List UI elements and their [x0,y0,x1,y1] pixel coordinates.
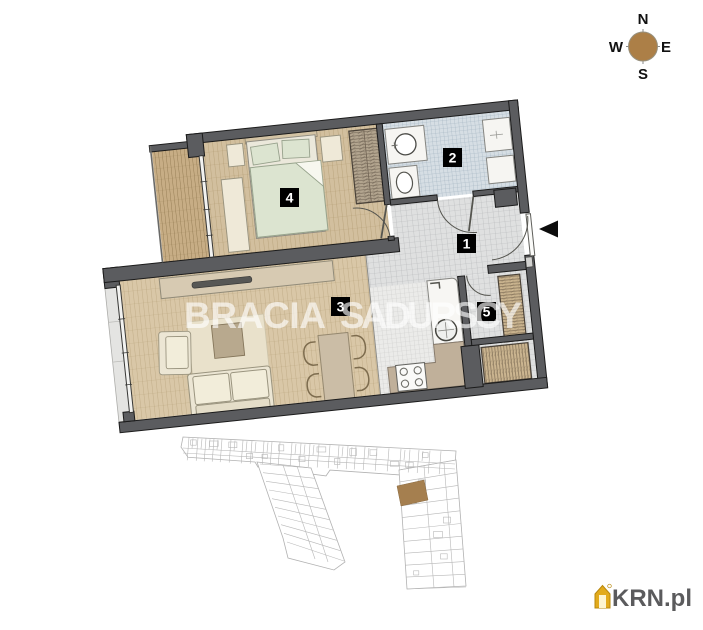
svg-text:S: S [638,66,648,83]
svg-text:1: 1 [463,236,471,252]
svg-text:N: N [638,11,649,28]
svg-text:E: E [661,39,671,56]
svg-text:4: 4 [286,190,294,206]
svg-text:BRACIA: BRACIA [184,295,326,336]
svg-text:SADURSCY: SADURSCY [340,295,522,336]
svg-text:KRN.pl: KRN.pl [612,585,692,612]
svg-text:2: 2 [449,150,457,166]
svg-text:W: W [609,39,624,56]
